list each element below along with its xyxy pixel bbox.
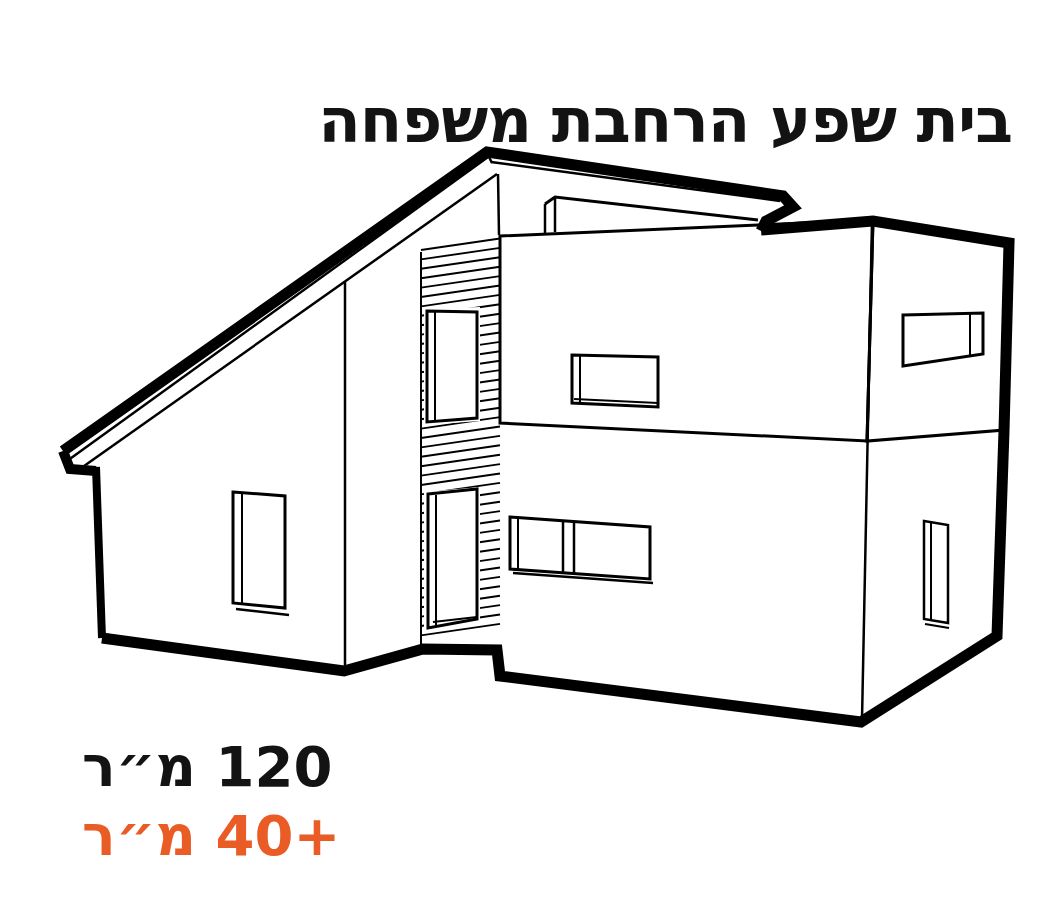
window-frame: [924, 521, 948, 623]
door-backing: [424, 487, 480, 631]
base-and-right-outline: [102, 221, 1009, 722]
siding-slat-line: [421, 239, 500, 251]
area-stats: 120 מ״ר +40 מ״ר: [82, 732, 340, 871]
addition-front-window: [572, 355, 658, 407]
parapet-top-edge: [545, 197, 758, 220]
siding-slat-line: [421, 427, 500, 439]
infographic-root: בית שפע הרחבת משפחה 120 מ״ר +40 מ״ר: [0, 0, 1042, 903]
bay-door: [424, 487, 480, 631]
siding-slat-line: [421, 248, 500, 260]
front-right-corner-line: [862, 222, 872, 720]
addition-front-face: [500, 220, 873, 441]
bay-right-upper-edge: [498, 174, 499, 235]
addition-side-window: [903, 313, 983, 366]
window-sill-line: [236, 609, 289, 615]
existing-area-label: 120 מ״ר: [82, 732, 340, 801]
siding-slat-line: [421, 257, 500, 269]
siding-slat-line: [421, 267, 500, 279]
lower-floor-side-window: [924, 521, 949, 628]
siding-slat-line: [421, 445, 500, 457]
page-title: בית שפע הרחבת משפחה: [318, 84, 1012, 157]
left-wall-edge: [96, 467, 102, 638]
left-wing-window: [233, 492, 289, 615]
bay-upper-window: [424, 307, 480, 425]
addition-right-face: [867, 220, 1009, 441]
addition-area-label: +40 מ״ר: [82, 801, 340, 870]
window-frame: [510, 517, 650, 579]
window-sill-line: [925, 624, 949, 628]
window-frame: [233, 492, 285, 608]
siding-slat-line: [421, 286, 500, 298]
top-floor-addition-highlight: [500, 220, 1009, 441]
lower-floor-window-pair: [510, 517, 653, 583]
siding-slat-line: [421, 276, 500, 288]
siding-slat-line: [421, 436, 500, 448]
roof-fascia-line-right: [491, 162, 780, 201]
siding-slat-line: [421, 474, 500, 486]
siding-slat-line: [421, 295, 500, 307]
siding-slat-line: [421, 464, 500, 476]
siding-slat-line: [421, 455, 500, 467]
window-backing: [424, 307, 480, 425]
